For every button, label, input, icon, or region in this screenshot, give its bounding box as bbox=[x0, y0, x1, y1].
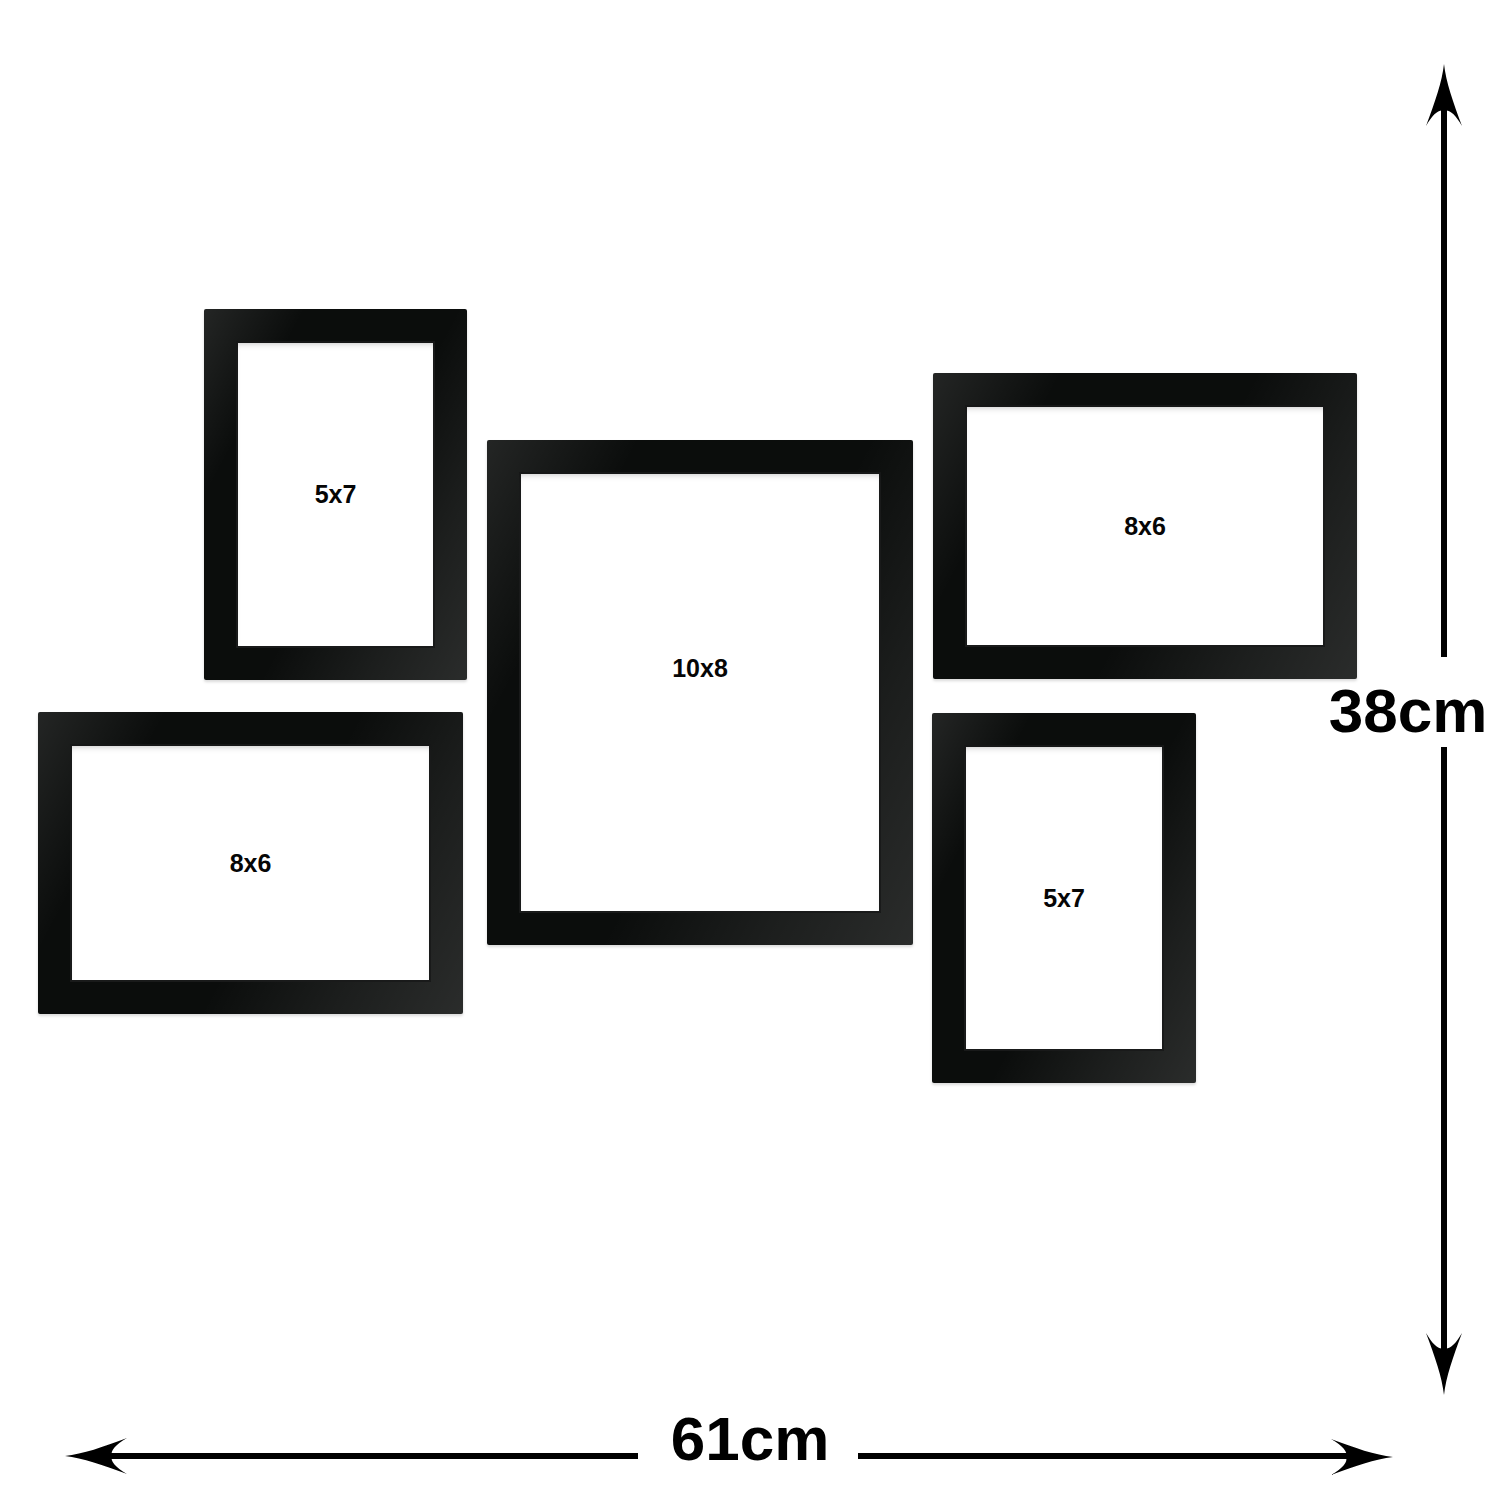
photo-frame-top-left-5x7: 5x7 bbox=[204, 309, 467, 680]
arrowhead-down-icon bbox=[1426, 1333, 1462, 1395]
height-arrow-line-lower bbox=[1441, 747, 1447, 1355]
photo-frame-center-10x8: 10x8 bbox=[487, 440, 913, 945]
frame-size-label: 10x8 bbox=[672, 654, 728, 683]
photo-frame-top-right-8x6: 8x6 bbox=[933, 373, 1357, 679]
width-arrow-line-left bbox=[104, 1453, 638, 1459]
frame-size-label: 8x6 bbox=[1124, 512, 1166, 541]
width-dimension-label: 61cm bbox=[670, 1408, 830, 1470]
height-arrow-line-upper bbox=[1441, 104, 1447, 657]
arrowhead-right-icon bbox=[1331, 1439, 1393, 1475]
frame-opening: 5x7 bbox=[964, 745, 1164, 1051]
frame-opening: 8x6 bbox=[965, 405, 1325, 647]
product-dimension-diagram: 5x7 10x8 8x6 8x6 5x7 38cm bbox=[0, 0, 1500, 1500]
width-arrow-line-right bbox=[858, 1453, 1348, 1459]
frame-size-label: 5x7 bbox=[315, 480, 357, 509]
photo-frame-bottom-right-5x7: 5x7 bbox=[932, 713, 1196, 1083]
height-dimension-label: 38cm bbox=[1328, 680, 1488, 742]
frame-opening: 10x8 bbox=[519, 472, 881, 913]
frame-size-label: 5x7 bbox=[1043, 884, 1085, 913]
frame-size-label: 8x6 bbox=[230, 849, 272, 878]
frame-opening: 5x7 bbox=[236, 341, 435, 648]
frame-opening: 8x6 bbox=[70, 744, 431, 982]
photo-frame-bottom-left-8x6: 8x6 bbox=[38, 712, 463, 1014]
